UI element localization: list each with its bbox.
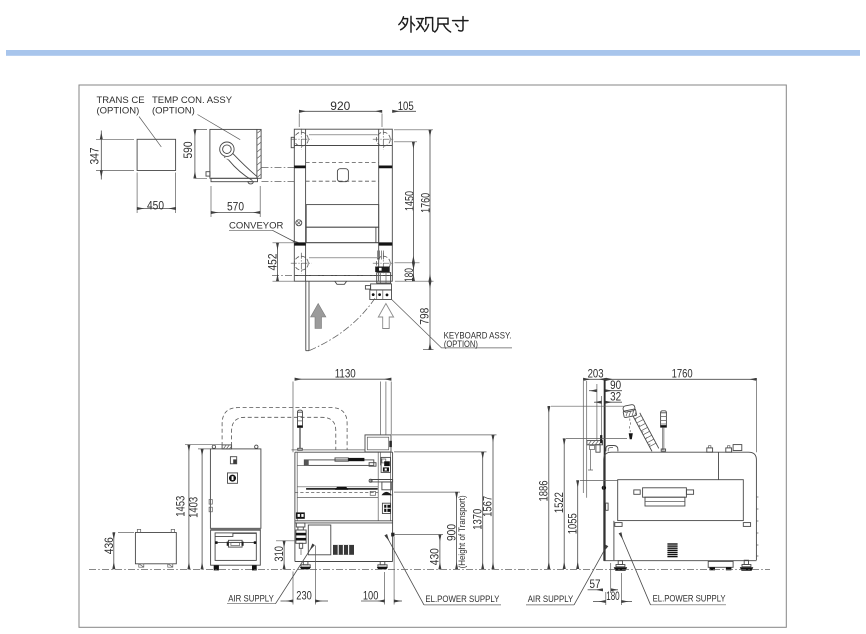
- svg-text:590: 590: [181, 141, 195, 158]
- svg-text:TRANS CE: TRANS CE: [97, 95, 145, 106]
- svg-text:1450: 1450: [403, 191, 417, 211]
- svg-text:1130: 1130: [335, 366, 356, 380]
- svg-text:1567: 1567: [481, 496, 495, 517]
- svg-text:570: 570: [227, 199, 244, 213]
- svg-text:436: 436: [102, 537, 116, 554]
- svg-text:1522: 1522: [552, 492, 566, 513]
- svg-text:310: 310: [272, 546, 286, 562]
- svg-text:(OPTION): (OPTION): [152, 106, 195, 117]
- svg-text:798: 798: [417, 307, 431, 324]
- svg-text:1886: 1886: [536, 480, 550, 501]
- svg-text:203: 203: [588, 366, 604, 380]
- svg-text:1453: 1453: [173, 495, 187, 516]
- svg-text:32: 32: [610, 390, 621, 404]
- svg-text:AIR SUPPLY: AIR SUPPLY: [528, 594, 574, 605]
- svg-text:452: 452: [265, 253, 279, 270]
- svg-text:(OPTION): (OPTION): [444, 339, 478, 350]
- svg-text:1403: 1403: [187, 497, 201, 518]
- svg-text:430: 430: [428, 548, 442, 565]
- svg-text:(OPTION): (OPTION): [97, 106, 140, 117]
- svg-text:EL.POWER SUPPLY: EL.POWER SUPPLY: [425, 594, 500, 605]
- svg-text:EL.POWER SUPPLY: EL.POWER SUPPLY: [653, 594, 727, 605]
- svg-text:180: 180: [606, 589, 620, 603]
- svg-text:450: 450: [147, 199, 164, 213]
- svg-text:105: 105: [398, 99, 414, 113]
- svg-text:920: 920: [330, 99, 350, 113]
- svg-text:100: 100: [363, 588, 379, 602]
- svg-text:1760: 1760: [418, 193, 432, 213]
- svg-text:TEMP CON. ASSY: TEMP CON. ASSY: [152, 95, 233, 106]
- svg-text:57: 57: [590, 577, 601, 591]
- svg-text:1055: 1055: [565, 513, 579, 534]
- svg-text:347: 347: [88, 147, 102, 164]
- svg-text:230: 230: [296, 588, 312, 602]
- svg-text:180: 180: [402, 268, 416, 282]
- svg-text:(Height of Transport): (Height of Transport): [457, 495, 468, 568]
- svg-text:AIR SUPPLY: AIR SUPPLY: [228, 594, 274, 605]
- svg-text:1760: 1760: [672, 366, 693, 380]
